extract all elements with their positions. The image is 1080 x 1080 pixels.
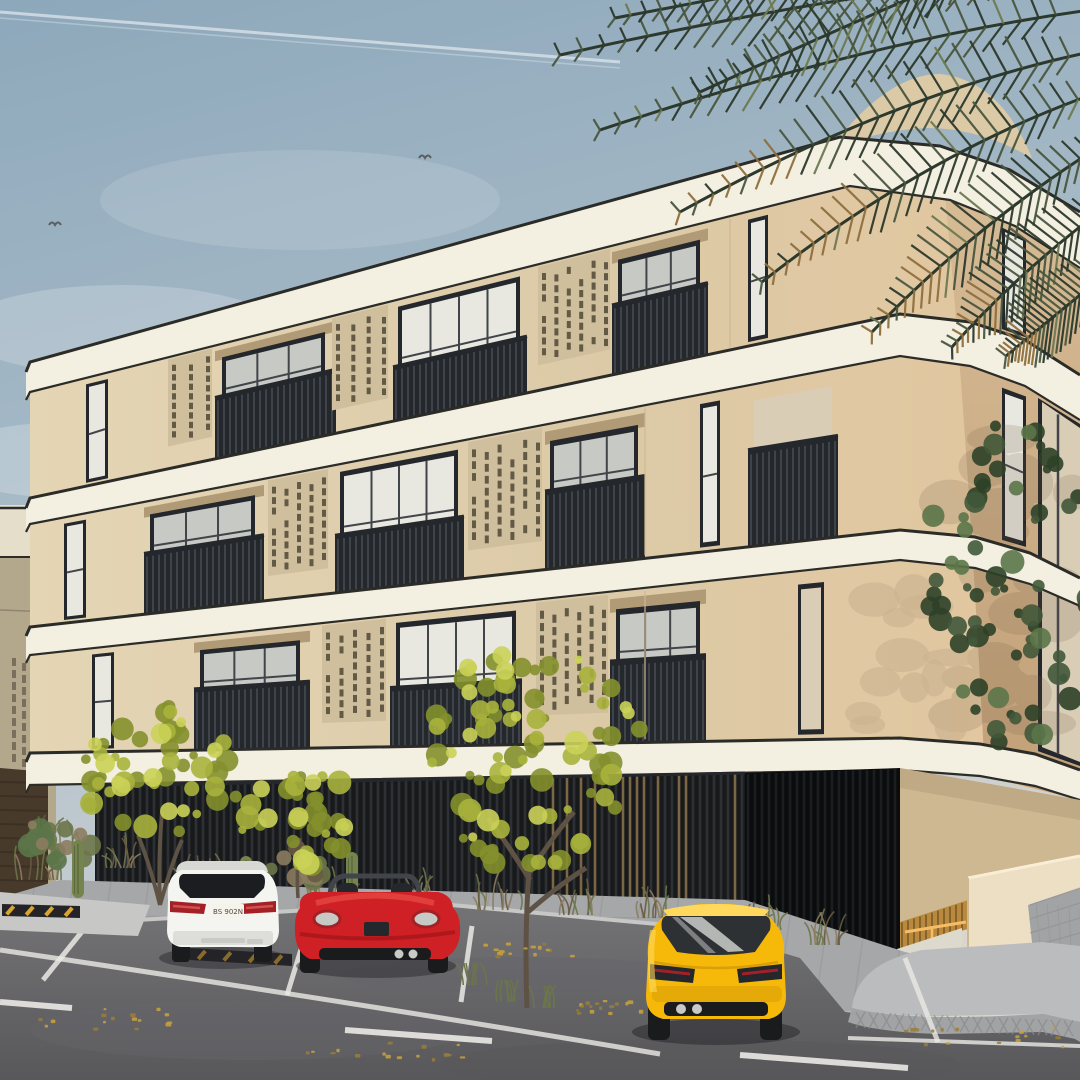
foliage <box>477 678 496 697</box>
foliage <box>922 505 944 527</box>
foliage <box>964 492 985 513</box>
fallen-leaf <box>306 1051 310 1054</box>
foliage <box>462 728 477 743</box>
perforation-slot <box>542 273 546 280</box>
foliage <box>427 757 437 767</box>
perforation-slot <box>590 618 594 626</box>
foliage <box>983 623 996 636</box>
foliage <box>446 747 457 758</box>
perforation-slot <box>326 675 330 682</box>
fallen-leaf <box>997 1042 1001 1044</box>
foliage <box>177 804 190 817</box>
perforation-slot <box>485 535 489 543</box>
perforation-slot <box>367 337 371 344</box>
foliage <box>1011 650 1022 661</box>
perforation-slot <box>340 679 344 686</box>
foliage <box>192 810 201 819</box>
foliage <box>1047 455 1064 472</box>
perforation-slot <box>536 467 540 475</box>
perforation-slot <box>510 520 514 528</box>
perforation-slot <box>498 529 502 537</box>
foliage <box>92 777 105 790</box>
perforation-slot <box>297 556 301 563</box>
frond-leaflet <box>984 312 985 339</box>
perforation-slot <box>322 510 326 517</box>
perforated-screen-panel <box>538 249 610 365</box>
perforation-slot <box>172 403 176 409</box>
foliage <box>539 656 559 676</box>
fallen-leaf <box>586 1001 590 1005</box>
foliage <box>515 836 529 850</box>
foliage <box>1048 662 1071 685</box>
roadster-taillight <box>413 911 439 927</box>
perforation-slot <box>380 649 384 656</box>
foliage <box>564 731 588 755</box>
fallen-leaf <box>51 1020 56 1024</box>
perforation-slot <box>590 657 594 665</box>
foliage <box>511 711 522 722</box>
fallen-leaf <box>103 1008 106 1010</box>
foliage <box>1061 498 1077 514</box>
perforation-slot <box>367 316 371 323</box>
perforation-slot <box>498 505 502 513</box>
foliage <box>1021 425 1036 440</box>
perforation-slot <box>272 529 276 536</box>
perforation-slot <box>510 532 514 540</box>
fallen-leaf <box>495 955 500 959</box>
perforation-slot <box>554 339 558 346</box>
perforation-slot <box>577 625 581 633</box>
foliage <box>160 802 178 820</box>
perforation-slot <box>367 677 371 684</box>
perforation-slot <box>326 707 330 714</box>
fallen-leaf <box>608 1012 612 1015</box>
perforation-slot <box>485 524 489 532</box>
perforation-slot <box>382 368 386 375</box>
fallen-leaf <box>432 1058 435 1062</box>
foliage <box>570 833 591 854</box>
foliage <box>968 540 983 555</box>
perforation-slot <box>297 525 301 532</box>
plank-line <box>0 810 48 811</box>
perforation-slot <box>382 388 386 395</box>
foliage <box>528 806 547 825</box>
foliage <box>475 717 496 738</box>
perforation-slot <box>472 509 476 517</box>
perforation-slot <box>206 366 210 372</box>
perforation-slot <box>351 335 355 342</box>
fallen-leaf <box>546 949 550 951</box>
fallen-leaf <box>1015 1035 1019 1038</box>
perforation-slot <box>353 695 357 702</box>
foliage <box>983 434 1005 456</box>
foliage-shadow <box>921 659 947 696</box>
fallen-leaf <box>590 1010 595 1014</box>
perforation-slot <box>322 542 326 549</box>
foliage <box>287 835 300 848</box>
fallen-leaf <box>570 955 575 958</box>
perforation-slot <box>485 476 489 484</box>
perforation-slot <box>326 643 330 650</box>
foliage <box>132 731 148 747</box>
perforation-slot <box>510 496 514 504</box>
sedan-bumper-shade <box>652 986 782 1002</box>
foliage <box>929 573 944 588</box>
foliage <box>580 684 589 693</box>
perforation-slot <box>322 531 326 538</box>
fallen-leaf <box>595 1002 599 1005</box>
perforation-slot <box>172 431 176 437</box>
perforation-slot <box>322 553 326 560</box>
foliage <box>968 615 982 629</box>
perforation-slot <box>554 285 558 292</box>
fallen-leaf <box>45 1025 48 1028</box>
perforation-slot <box>340 646 344 653</box>
foliage <box>1001 550 1025 574</box>
perforation-slot <box>536 492 540 500</box>
foliage <box>36 838 49 851</box>
perforation-slot <box>322 499 326 506</box>
roadster-exhaust <box>409 950 418 959</box>
fallen-leaf <box>386 1055 391 1059</box>
perforation-slot <box>523 452 527 460</box>
foliage <box>963 583 972 592</box>
perforation-slot <box>382 327 386 334</box>
perforation-slot <box>297 514 301 521</box>
foliage <box>1009 712 1021 724</box>
perforation-slot <box>567 332 571 339</box>
fallen-leaf <box>388 1042 393 1045</box>
perforation-slot <box>485 452 489 460</box>
white-suv: BS 902N <box>159 861 287 969</box>
perforation-slot <box>189 393 193 399</box>
perforation-slot <box>353 673 357 680</box>
fallen-leaf <box>111 1017 115 1021</box>
foliage <box>477 809 500 832</box>
perforation-slot <box>382 358 386 365</box>
perforation-slot <box>590 631 594 639</box>
perforation-slot <box>22 675 26 683</box>
fallen-leaf <box>627 1000 633 1004</box>
foliage <box>932 596 951 615</box>
perforation-slot <box>552 677 556 685</box>
frond-leaflet <box>913 290 914 313</box>
perforation-slot <box>367 644 371 651</box>
perforation-slot <box>592 283 596 290</box>
perforation-slot <box>353 641 357 648</box>
foliage <box>151 723 172 744</box>
perforation-slot <box>12 742 16 750</box>
foliage <box>459 659 477 677</box>
perforation-slot <box>351 365 355 372</box>
perforation-slot <box>172 412 176 418</box>
perforation-slot <box>552 639 556 647</box>
perforation-slot <box>310 516 314 523</box>
foliage <box>327 770 351 794</box>
perforation-slot <box>172 374 176 380</box>
foliage <box>95 754 115 774</box>
perforation-slot <box>310 506 314 513</box>
foliage <box>191 756 213 778</box>
perforation-slot <box>498 481 502 489</box>
foliage <box>579 667 597 685</box>
foliage <box>236 806 260 830</box>
fallen-leaf <box>422 1045 427 1049</box>
fallen-leaf <box>38 1018 42 1021</box>
perforation-slot <box>351 324 355 331</box>
fallen-leaf <box>311 1051 315 1053</box>
perforation-slot <box>565 658 569 666</box>
perforation-slot <box>351 345 355 352</box>
perforation-slot <box>272 539 276 546</box>
foliage-shadow <box>860 667 901 696</box>
foliage-shadow <box>875 638 929 672</box>
fallen-leaf <box>483 944 488 947</box>
foliage <box>330 838 351 859</box>
perforation-slot <box>382 317 386 324</box>
fallen-leaf <box>1055 1036 1061 1039</box>
perforation-slot <box>542 294 546 301</box>
perforation-slot <box>472 461 476 469</box>
fallen-leaf <box>134 1028 138 1031</box>
fallen-leaf <box>940 1028 943 1032</box>
fallen-leaf <box>494 948 499 951</box>
perforation-slot <box>336 364 340 371</box>
fallen-leaf <box>533 953 537 957</box>
perforation-slot <box>567 299 571 306</box>
perforation-slot <box>604 339 608 346</box>
perforation-slot <box>297 535 301 542</box>
foliage <box>1030 628 1051 649</box>
sedan-exhaust <box>676 1004 686 1014</box>
perforation-slot <box>322 477 326 484</box>
foliage <box>111 776 124 789</box>
perforation-slot <box>340 636 344 643</box>
perforation-slot <box>472 473 476 481</box>
perforation-slot <box>367 357 371 364</box>
perforation-slot <box>189 365 193 371</box>
perforation-slot <box>523 489 527 497</box>
foliage <box>470 840 488 858</box>
perforation-slot <box>567 310 571 317</box>
suv-exhaust <box>247 939 263 944</box>
fallen-leaf <box>1024 1035 1028 1037</box>
foliage <box>143 768 162 787</box>
perforation-slot <box>567 321 571 328</box>
perforation-slot <box>172 365 176 371</box>
license-plate-text: BS 902N <box>213 908 243 916</box>
fallen-leaf <box>538 946 542 950</box>
perforation-slot <box>12 670 16 678</box>
perforation-slot <box>367 367 371 374</box>
fallen-leaf <box>397 1056 402 1059</box>
fallen-leaf <box>156 1008 160 1011</box>
perforation-slot <box>189 412 193 418</box>
perforation-slot <box>22 747 26 755</box>
perforation-slot <box>536 443 540 451</box>
foliage <box>597 697 610 710</box>
foliage <box>57 821 74 838</box>
fallen-leaf <box>457 1044 460 1046</box>
perforation-slot <box>590 695 594 703</box>
fallen-leaf <box>910 1028 916 1032</box>
perforation-slot <box>579 290 583 297</box>
perforation-slot <box>189 431 193 437</box>
foliage <box>564 805 572 813</box>
perforation-slot <box>353 662 357 669</box>
foliage <box>465 771 474 780</box>
foliage <box>162 752 180 770</box>
fallen-leaf <box>460 1056 466 1058</box>
perforation-slot <box>340 700 344 707</box>
perforation-slot <box>336 324 340 331</box>
perforation-slot <box>310 548 314 555</box>
foliage <box>970 588 984 602</box>
foliage <box>991 587 1000 596</box>
perforation-slot <box>565 608 569 616</box>
fallen-leaf <box>101 1014 106 1017</box>
frond-leaflet <box>990 306 991 335</box>
perforation-slot <box>351 375 355 382</box>
foliage <box>114 814 131 831</box>
fallen-leaf <box>599 1006 602 1010</box>
roadster-plate-recess <box>364 922 389 936</box>
window-muntin <box>95 701 111 702</box>
perforation-slot <box>172 384 176 390</box>
fallen-leaf <box>336 1049 339 1052</box>
perforation-slot <box>472 449 476 457</box>
fallen-leaf <box>416 1055 419 1058</box>
perforation-slot <box>604 306 608 313</box>
foliage <box>968 637 978 647</box>
perforation-slot <box>604 328 608 335</box>
perforation-slot <box>297 503 301 510</box>
fallen-leaf <box>1019 1031 1024 1034</box>
perforation-slot <box>536 479 540 487</box>
foliage <box>620 701 632 713</box>
foliage <box>258 808 278 828</box>
perforation-slot <box>579 312 583 319</box>
fallen-leaf <box>542 943 546 946</box>
perforation-slot <box>310 527 314 534</box>
perforation-slot <box>310 538 314 545</box>
foliage <box>970 678 988 696</box>
foliage <box>530 768 554 792</box>
foliage <box>988 687 1009 708</box>
perforation-slot <box>22 663 26 671</box>
foliage <box>954 560 969 575</box>
fallen-leaf <box>931 1029 934 1032</box>
perforation-slot <box>498 517 502 525</box>
perforation-slot <box>565 633 569 641</box>
perforation-slot <box>285 520 289 527</box>
foliage <box>1031 515 1040 524</box>
perforation-slot <box>367 688 371 695</box>
perforation-slot <box>542 327 546 334</box>
foliage <box>956 684 970 698</box>
perforation-slot <box>310 495 314 502</box>
perforation-slot <box>367 699 371 706</box>
fallen-leaf <box>603 1000 608 1002</box>
fallen-leaf <box>499 950 505 953</box>
perforation-slot <box>380 660 384 667</box>
perforation-slot <box>485 464 489 472</box>
perforation-slot <box>12 682 16 690</box>
perforation-slot <box>206 395 210 401</box>
perforation-slot <box>565 671 569 679</box>
fallen-leaf <box>138 1019 142 1022</box>
perforation-slot <box>12 694 16 702</box>
perforation-slot <box>189 384 193 390</box>
perforation-slot <box>206 424 210 430</box>
perforation-slot <box>604 273 608 280</box>
foliage <box>88 737 102 751</box>
foliage <box>990 421 1001 432</box>
perforation-slot <box>285 563 289 570</box>
foliage <box>289 807 309 827</box>
perforation-slot <box>542 348 546 355</box>
perforation-slot <box>536 504 540 512</box>
perforation-slot <box>510 459 514 467</box>
perforation-slot <box>602 635 606 643</box>
fallen-leaf <box>576 1009 579 1011</box>
perforation-slot <box>367 347 371 354</box>
perforation-slot <box>353 706 357 713</box>
foliage <box>1025 704 1042 721</box>
fallen-leaf <box>523 947 527 949</box>
perforation-slot <box>485 488 489 496</box>
perforation-slot <box>554 296 558 303</box>
foliage <box>474 775 485 786</box>
perforation-slot <box>22 735 26 743</box>
foliage <box>548 855 563 870</box>
perforation-slot <box>336 354 340 361</box>
perforation-slot <box>577 637 581 645</box>
foliage <box>304 802 327 825</box>
plank-line <box>0 866 48 867</box>
perforation-slot <box>380 627 384 634</box>
foliage <box>593 727 606 740</box>
perforation-slot <box>472 497 476 505</box>
foliage <box>297 852 320 875</box>
perforation-slot <box>272 560 276 567</box>
foliage <box>518 755 528 765</box>
perforation-slot <box>498 457 502 465</box>
perforation-slot <box>340 711 344 718</box>
perforation-slot <box>382 337 386 344</box>
perforation-slot <box>285 499 289 506</box>
perforation-slot <box>380 693 384 700</box>
foliage <box>600 764 622 786</box>
foliage <box>288 771 300 783</box>
perforation-slot <box>536 516 540 524</box>
foliage <box>487 844 499 856</box>
perforation-slot <box>567 267 571 274</box>
perforation-slot <box>12 730 16 738</box>
perforation-slot <box>340 668 344 675</box>
perforation-slot <box>12 658 16 666</box>
perforation-slot <box>382 378 386 385</box>
perforation-slot <box>604 262 608 269</box>
foliage <box>28 820 37 829</box>
foliage <box>335 818 353 836</box>
foliage <box>586 788 596 798</box>
perforation-slot <box>336 344 340 351</box>
perforation-slot <box>326 696 330 703</box>
fallen-leaf <box>132 1017 137 1021</box>
perforation-slot <box>540 611 544 619</box>
foliage <box>133 814 157 838</box>
